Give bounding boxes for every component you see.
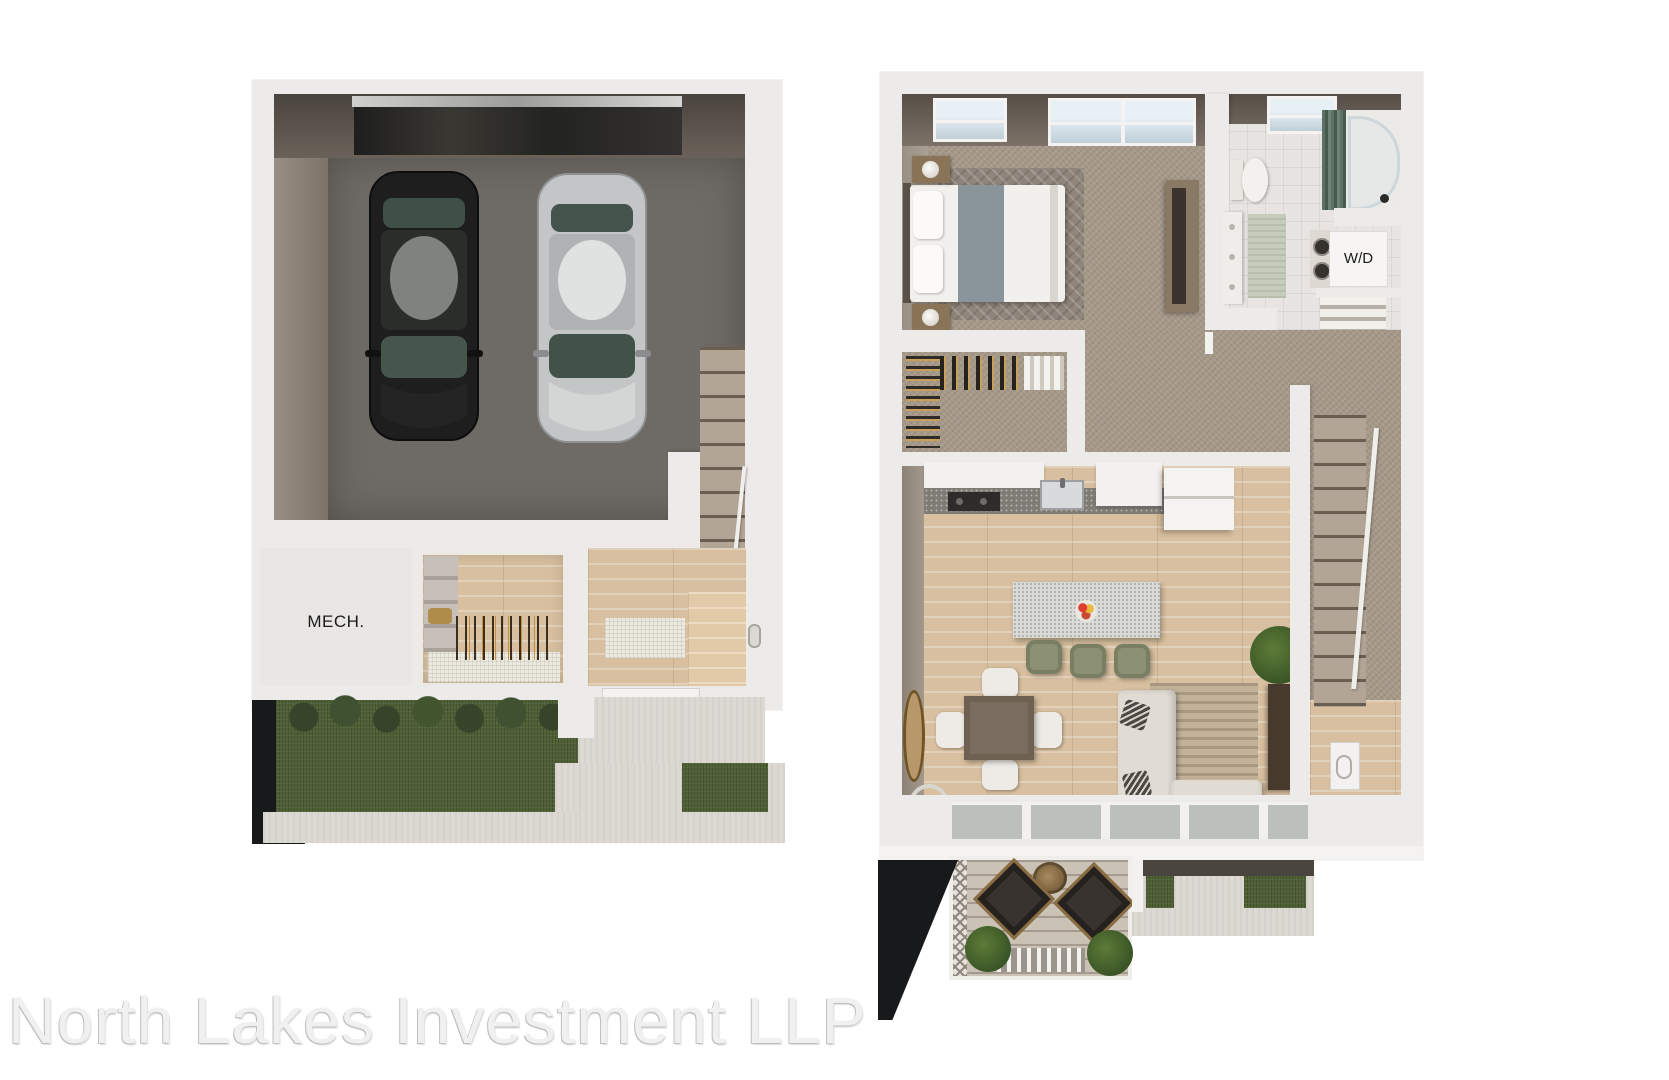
closet-clothes-top (940, 356, 1024, 390)
bed-blanket (958, 185, 1004, 302)
lawn-right-patch (682, 763, 768, 812)
garage-bottom-wall (252, 520, 700, 548)
kitchen-upper-cabinets (924, 462, 1044, 490)
deck-planter (1087, 930, 1133, 976)
garden-tools-rack (456, 616, 552, 660)
bar-stool (1070, 644, 1106, 678)
side-grass-patch (1146, 876, 1174, 908)
closet-right-wall (1067, 330, 1085, 452)
mech-room: MECH. (260, 548, 412, 688)
linen-towels (1320, 297, 1386, 331)
storage-basket (428, 608, 452, 624)
side-grass-patch (1244, 876, 1306, 908)
stair-landing (688, 592, 746, 688)
shrub-row (280, 694, 576, 736)
wd-label: W/D (1330, 250, 1387, 267)
hallway-floor (1085, 330, 1310, 452)
garage-door (354, 107, 682, 155)
deck-lattice (953, 860, 967, 976)
bed (910, 185, 1065, 302)
bathroom-vanity (1222, 212, 1242, 304)
storage-entry-wall (568, 548, 588, 688)
closet-shelf (1024, 356, 1064, 390)
shower-tile-wall (1322, 110, 1346, 210)
bed-foot-fold (1050, 185, 1058, 302)
washer-door-icon (1313, 238, 1331, 256)
bathroom-bottom-wall (1205, 308, 1277, 332)
nightstand (912, 304, 950, 331)
wall-mirror (903, 690, 925, 782)
garage-door-track (352, 96, 682, 107)
faucet (1060, 478, 1065, 488)
vanity-knob (1229, 284, 1235, 290)
cooktop (948, 492, 1000, 511)
shower (1322, 110, 1401, 210)
sliding-glass-doors (952, 802, 1308, 839)
toilet-bowl (1242, 158, 1268, 202)
door-handle (1336, 755, 1352, 779)
lower-entry-door (1330, 742, 1360, 790)
fruit-bowl (1075, 600, 1097, 622)
storage-shelving (424, 556, 458, 652)
deck (953, 860, 1128, 976)
table-lamp (922, 309, 939, 326)
fridge-door-split (1164, 496, 1234, 499)
refrigerator (1164, 468, 1234, 530)
vanity-knob (1229, 254, 1235, 260)
bedroom-dresser (1166, 180, 1199, 312)
bedroom-window-double (1048, 98, 1196, 146)
closet-floor (902, 352, 1067, 452)
deck-planter (965, 926, 1011, 972)
table-top-inset (970, 702, 1028, 754)
bottom-wall-lip (880, 846, 1423, 860)
entry-door-handle (748, 624, 761, 648)
walkway-shadow-band (1132, 860, 1314, 876)
window-mullion (936, 120, 1004, 123)
dining-chair (982, 760, 1018, 790)
porch-wall-stub (558, 688, 594, 738)
shower-glass-door (1348, 116, 1400, 210)
wd-closet: W/D (1330, 232, 1387, 286)
shower-wall-stub (1334, 208, 1401, 226)
vanity-knob (1229, 224, 1235, 230)
dining-chair (936, 712, 966, 748)
mech-room-label: MECH. (268, 612, 404, 632)
bath-mat (1248, 214, 1286, 298)
car-sedan-silver (533, 170, 651, 446)
closet-top-wall (880, 330, 1087, 352)
dining-chair (982, 668, 1018, 698)
burner (980, 498, 987, 505)
table-lamp (922, 161, 939, 178)
walkway-side (682, 697, 765, 763)
bedroom-window-single (933, 98, 1007, 142)
nightstand (912, 156, 950, 183)
bar-stool (1026, 640, 1062, 674)
sidewalk (263, 812, 578, 843)
closet-clothes-left (906, 356, 940, 448)
storage-room (418, 550, 568, 688)
entry-door-mat (605, 618, 685, 658)
burner (956, 498, 963, 505)
kitchen-sink (1040, 480, 1084, 510)
bed-pillow (913, 191, 943, 239)
kitchen-cabinets-right (1096, 462, 1162, 506)
entry-hall (588, 548, 746, 688)
dining-chair (1032, 712, 1062, 748)
porch-post (1132, 860, 1143, 912)
car-suv-dark (365, 168, 483, 444)
dining-table (964, 696, 1034, 760)
building-shadow (878, 860, 958, 1020)
bed-pillow (913, 245, 943, 293)
dresser-front (1172, 188, 1186, 304)
bar-stool (1114, 644, 1150, 678)
wd-lower-wall (1316, 288, 1401, 297)
washer-dryer-front (1310, 230, 1330, 288)
garage-left-wall-face (274, 158, 328, 520)
bathroom-door-frame (1205, 332, 1213, 354)
stair-hall-wall (1290, 385, 1310, 800)
window-mullion (1051, 122, 1193, 125)
dryer-door-icon (1313, 262, 1331, 280)
kitchen-island (1013, 582, 1160, 638)
watermark-text: North Lakes Investment LLP (8, 982, 867, 1058)
floorplan-canvas: North Lakes Investment LLP (0, 0, 1669, 1080)
shower-drain (1380, 194, 1389, 203)
